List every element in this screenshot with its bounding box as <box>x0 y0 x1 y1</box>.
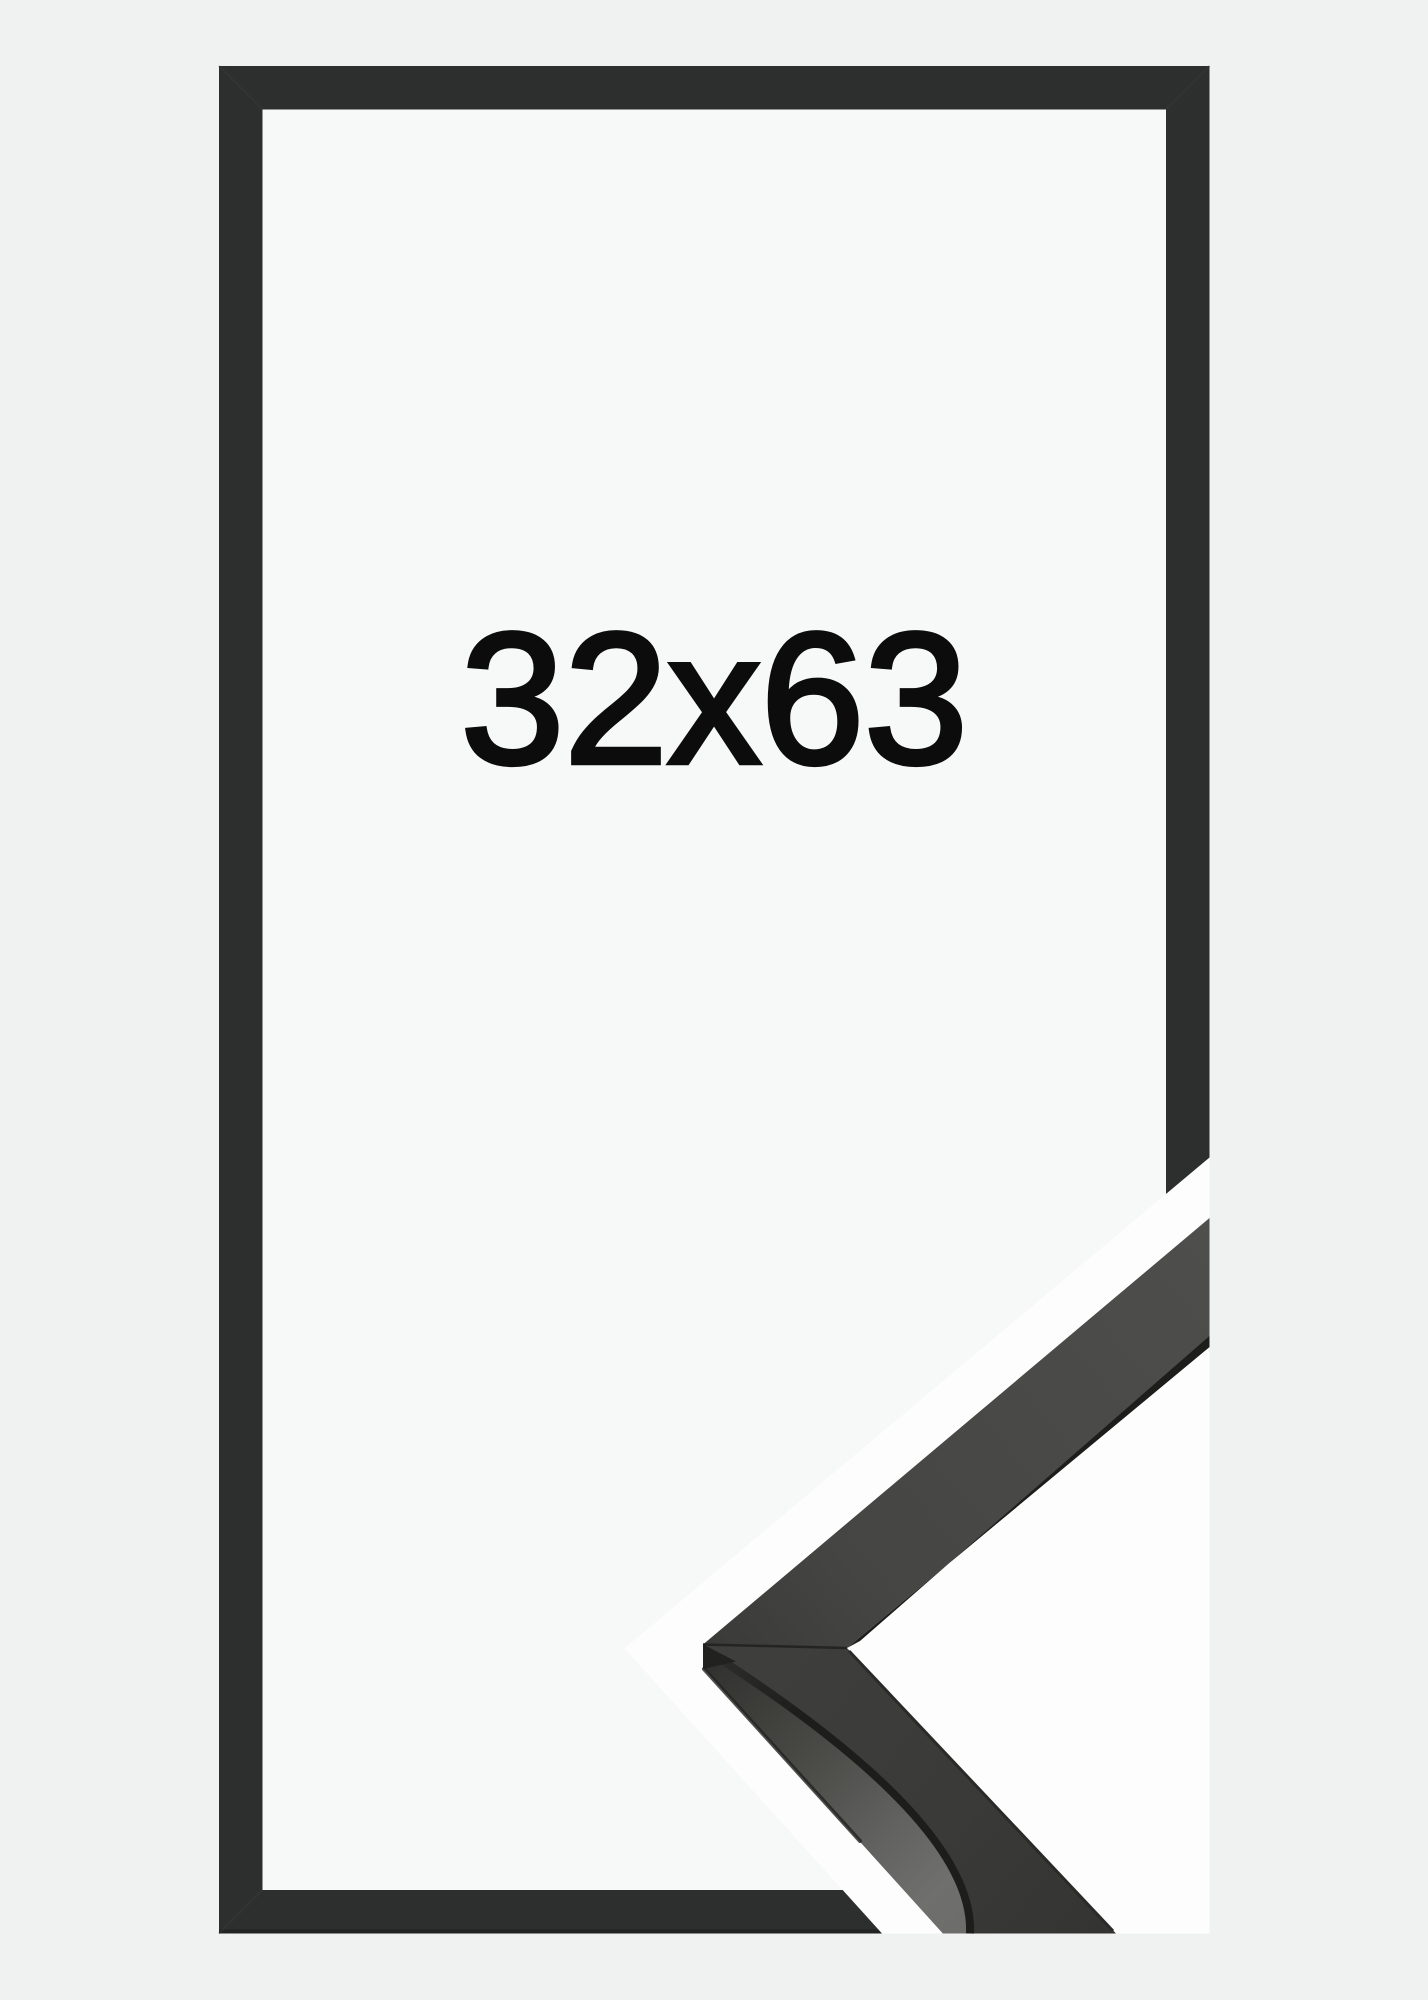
svg-text:32x63: 32x63 <box>460 594 967 803</box>
